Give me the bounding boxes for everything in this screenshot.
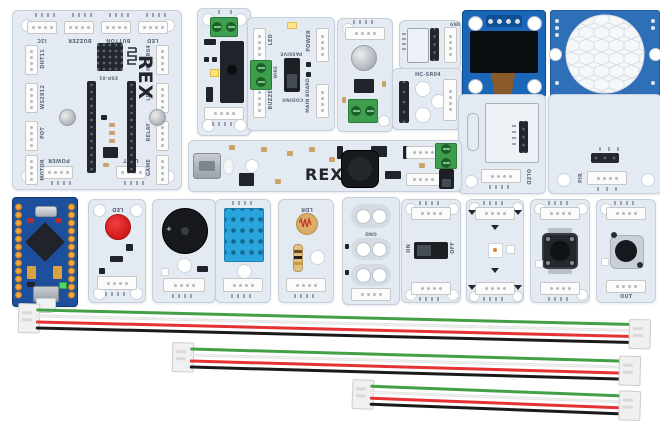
pin-legs <box>483 201 503 205</box>
pin <box>161 172 164 175</box>
pin <box>616 285 619 288</box>
pin <box>32 26 35 29</box>
pin <box>425 201 427 205</box>
pin <box>117 292 119 296</box>
contact-pad <box>356 242 371 257</box>
pin-legs <box>353 20 373 24</box>
port-power <box>43 166 73 179</box>
pin <box>218 10 220 14</box>
neopixel-led <box>488 243 503 258</box>
smd-pad <box>287 151 293 156</box>
pin <box>568 287 571 290</box>
pin <box>57 181 59 185</box>
pin <box>239 284 242 287</box>
mounting-hole <box>177 258 192 273</box>
pin-legs <box>548 201 568 205</box>
pin <box>113 282 116 285</box>
pin <box>449 96 452 99</box>
cable-connector <box>618 355 641 386</box>
dht11-sensor <box>224 208 264 262</box>
mounting-hole <box>237 264 252 279</box>
pin <box>294 294 296 298</box>
port-label: LED <box>147 37 158 42</box>
pin <box>425 178 428 181</box>
pin <box>413 178 416 181</box>
pin <box>109 13 111 17</box>
pin <box>149 26 152 29</box>
port-label: WS2812 <box>41 85 46 109</box>
sonar-adapter: HC-SR04 <box>392 68 462 130</box>
pin <box>615 187 617 191</box>
pin <box>243 294 245 298</box>
pin <box>622 212 625 215</box>
pin <box>220 112 223 115</box>
mounting-hole <box>557 173 571 187</box>
pin <box>112 26 115 29</box>
pin <box>616 212 619 215</box>
pin <box>30 166 33 169</box>
diode <box>204 39 216 45</box>
pin <box>30 172 33 175</box>
pin <box>161 126 164 129</box>
smd-pad <box>382 81 386 87</box>
mode-board: LED POWER BUZZER MAIN BOARD WIRE PASSIVE… <box>247 17 335 131</box>
pin <box>232 201 234 205</box>
ic-chip <box>103 147 118 158</box>
pin <box>622 285 625 288</box>
pin <box>251 284 254 287</box>
dht11-module <box>215 199 271 303</box>
pin-legs <box>599 147 619 151</box>
pin <box>321 53 324 56</box>
pin <box>441 158 451 168</box>
button-module <box>530 199 590 303</box>
pin <box>321 109 324 112</box>
smd-pad <box>161 268 169 276</box>
pin <box>231 294 233 298</box>
relay-jst <box>204 107 244 120</box>
pin-legs <box>51 181 71 185</box>
pin-dot <box>651 19 655 23</box>
pin <box>250 201 252 205</box>
pin <box>172 294 174 298</box>
pin <box>351 106 361 116</box>
pin <box>244 201 246 205</box>
pin <box>161 26 164 29</box>
header-socket <box>519 121 528 153</box>
port-hcsr04 <box>156 45 169 75</box>
smd-pad <box>109 131 115 135</box>
contact-pad <box>356 268 371 283</box>
smd-pad <box>342 97 346 103</box>
rex-logo: REX <box>305 167 344 183</box>
pin <box>30 50 33 53</box>
power-led <box>59 282 67 289</box>
pin <box>212 22 222 32</box>
pin <box>367 32 370 35</box>
pin <box>314 284 317 287</box>
pot-lug <box>637 262 643 268</box>
buzzer <box>341 150 379 188</box>
mcu-board <box>12 197 78 307</box>
pin <box>161 56 164 59</box>
pin <box>258 91 261 94</box>
red-led <box>105 214 131 240</box>
relay-module <box>197 8 251 136</box>
crystal <box>35 206 57 217</box>
pin <box>105 292 107 296</box>
arrow-down <box>491 268 499 273</box>
pin <box>54 171 57 174</box>
port-motor <box>25 155 38 185</box>
port-led <box>253 28 266 62</box>
pin <box>437 297 439 301</box>
mounting-hole <box>527 79 542 94</box>
pin <box>164 13 166 17</box>
pin <box>87 26 90 29</box>
pin <box>245 284 248 287</box>
pin <box>321 103 324 106</box>
pin <box>69 26 72 29</box>
pin <box>548 297 550 301</box>
pin <box>35 13 37 17</box>
pin <box>597 187 599 191</box>
pin <box>495 297 497 301</box>
pin-dot <box>651 81 655 85</box>
pin <box>355 32 358 35</box>
pin <box>30 160 33 163</box>
pin <box>30 144 33 147</box>
mounting-hole <box>130 204 143 217</box>
pin <box>161 138 164 141</box>
pin <box>497 287 500 290</box>
pin <box>212 122 214 126</box>
switch-jst <box>411 282 451 295</box>
smd-part <box>99 268 105 274</box>
pin <box>421 212 424 215</box>
pin <box>321 35 324 38</box>
pin <box>178 294 180 298</box>
pin <box>439 212 442 215</box>
pin <box>258 47 261 50</box>
mounting-hole <box>468 79 483 94</box>
relay-dimple <box>227 65 237 75</box>
pin <box>146 13 148 17</box>
pin <box>449 108 452 111</box>
smd-pad <box>229 145 235 150</box>
pin <box>136 181 138 185</box>
pin <box>419 151 422 154</box>
button-jst <box>540 207 580 220</box>
pin <box>161 160 164 163</box>
mini-usb <box>193 153 221 179</box>
pin <box>121 13 123 17</box>
label-bracket <box>407 28 429 63</box>
smd-part <box>385 171 401 179</box>
pin <box>30 132 33 135</box>
power-jst <box>406 173 440 186</box>
pin <box>485 287 488 290</box>
pin <box>512 143 516 145</box>
port-label: POWER <box>48 157 70 162</box>
mounting-hole <box>641 173 655 187</box>
pin <box>491 212 494 215</box>
pin <box>161 94 164 97</box>
pir-carrier: PIR <box>548 94 660 194</box>
pin-legs <box>294 294 314 298</box>
pin <box>441 144 451 154</box>
led-module: LED <box>88 199 146 303</box>
breakout-jst <box>444 27 457 63</box>
pin-dot <box>651 26 655 30</box>
port-ws2812 <box>25 83 38 113</box>
oled-carrier: OLED <box>458 94 546 194</box>
pin-dot <box>555 26 559 30</box>
jst-cable-long <box>18 303 651 348</box>
pin-label: GND <box>450 23 461 27</box>
port-label: BUZZER <box>68 37 92 42</box>
pin <box>566 297 568 301</box>
driver-terminal <box>348 99 378 123</box>
power-board: REX <box>188 140 462 192</box>
pin <box>556 287 559 290</box>
smd-pad <box>601 258 609 266</box>
neopixel-jst <box>475 282 515 295</box>
pin <box>161 178 164 181</box>
pin <box>306 294 308 298</box>
mounting-hole <box>468 16 483 31</box>
pin <box>127 13 129 17</box>
pin <box>123 292 125 296</box>
push-button <box>542 233 578 269</box>
pin <box>119 282 122 285</box>
port-label: POT <box>41 127 46 139</box>
pin <box>489 201 491 205</box>
pot-lug <box>611 232 617 238</box>
pin-legs <box>512 125 516 145</box>
switch-label-coding: CODING <box>282 96 303 101</box>
pin <box>497 212 500 215</box>
pin <box>425 297 427 301</box>
pin <box>186 284 189 287</box>
pin <box>609 177 612 180</box>
driver-module <box>337 18 393 132</box>
ldr-module: LDR <box>278 199 334 303</box>
smd-part <box>197 266 208 272</box>
port-power <box>316 28 329 62</box>
pin <box>437 201 439 205</box>
port-label: POWER <box>307 30 312 52</box>
pin <box>628 285 631 288</box>
trimmer <box>351 45 377 71</box>
pin <box>402 33 406 35</box>
pin <box>258 41 261 44</box>
button-jst <box>540 282 580 295</box>
pin <box>512 131 516 133</box>
buzzer-module: + <box>152 199 216 303</box>
pin <box>402 48 406 50</box>
pin <box>30 178 33 181</box>
capacitor <box>59 109 76 126</box>
pin <box>427 212 430 215</box>
pin <box>38 26 41 29</box>
pin <box>107 282 110 285</box>
mounting-hole <box>93 204 106 217</box>
mounting-hole <box>465 175 478 188</box>
pin <box>373 32 376 35</box>
breakout-board: GND <box>399 20 461 70</box>
pin <box>503 212 506 215</box>
status-led <box>210 69 219 77</box>
ldr-sensor <box>296 213 318 235</box>
pin <box>161 144 164 147</box>
pin <box>626 201 628 205</box>
pin <box>507 185 509 189</box>
pin <box>48 171 51 174</box>
port-label: BUTTON <box>106 37 130 42</box>
pin-legs <box>35 13 55 17</box>
pin-legs <box>172 294 192 298</box>
pin <box>224 122 226 126</box>
pin <box>365 20 367 24</box>
pin <box>230 10 232 14</box>
smd-pad <box>261 147 267 152</box>
polarity-mark: + <box>166 226 172 233</box>
pin-legs <box>614 201 634 205</box>
port-button <box>101 21 131 34</box>
pin <box>30 88 33 91</box>
pin <box>620 201 622 205</box>
pin-legs <box>597 187 617 191</box>
smd-part <box>101 115 107 120</box>
pin <box>562 212 565 215</box>
fresnel-dome <box>564 13 646 95</box>
pin <box>230 122 232 126</box>
pin <box>81 26 84 29</box>
sonar-jst <box>443 79 457 121</box>
pin <box>606 187 608 191</box>
pin <box>66 171 69 174</box>
terminal-label: WIRE <box>274 66 278 79</box>
pin <box>427 287 430 290</box>
mounting-hole <box>378 115 390 127</box>
pin <box>449 102 452 105</box>
pin <box>379 293 382 296</box>
contact-pad <box>356 209 371 224</box>
pin <box>308 284 311 287</box>
smd-part <box>345 244 349 249</box>
pin <box>433 287 436 290</box>
oled-jst <box>481 169 521 183</box>
smd-part <box>204 57 209 62</box>
screw-hole <box>549 48 562 61</box>
port-led <box>138 21 168 34</box>
kit-photo: I2C BUZZER BUTTON LED DHT11 WS2812 POT M… <box>0 0 660 426</box>
pin <box>550 212 553 215</box>
pin <box>30 68 33 71</box>
pin <box>139 171 142 174</box>
arrow-down <box>514 285 522 290</box>
pin <box>431 178 434 181</box>
led-jst <box>97 276 137 290</box>
pin <box>161 68 164 71</box>
pin <box>258 97 261 100</box>
switch-module: ON OFF <box>401 199 461 303</box>
pin <box>30 106 33 109</box>
pin <box>560 297 562 301</box>
capacitor <box>149 109 166 126</box>
smd-part <box>306 62 311 67</box>
pin <box>614 201 616 205</box>
arrow-down <box>468 285 476 290</box>
pin <box>562 287 565 290</box>
smd-pad <box>109 123 115 127</box>
pin <box>161 132 164 135</box>
pin <box>449 47 452 50</box>
pin-dot <box>555 19 559 23</box>
pin <box>69 181 71 185</box>
pin <box>44 26 47 29</box>
pin <box>84 13 86 17</box>
pads-module: GND <box>342 197 400 305</box>
pin <box>121 171 124 174</box>
pin-legs <box>483 297 503 301</box>
pin <box>237 294 239 298</box>
pin <box>72 13 74 17</box>
pin-legs <box>489 185 509 189</box>
contact-pad <box>372 242 387 257</box>
socket-label: ESP-01 <box>99 74 118 79</box>
cable-connector <box>618 390 641 421</box>
screw-hole <box>649 48 660 61</box>
main-shield-board: I2C BUZZER BUTTON LED DHT11 WS2812 POT M… <box>12 10 182 190</box>
pin <box>560 201 562 205</box>
pin <box>249 294 251 298</box>
esp01-socket <box>97 43 123 71</box>
pin <box>161 100 164 103</box>
pin <box>226 112 229 115</box>
port-label: MAIN BOARD <box>307 78 312 113</box>
header-socket <box>591 153 619 163</box>
driver-jst <box>345 27 385 40</box>
pin <box>554 297 556 301</box>
pin <box>503 175 506 178</box>
module-label: HC-SR04 <box>415 73 441 78</box>
pin-legs <box>419 201 439 205</box>
smd-pad <box>103 163 109 167</box>
neopixel-jst <box>475 207 515 220</box>
pin <box>512 125 516 127</box>
pin-dot <box>555 81 559 85</box>
pin <box>634 285 637 288</box>
port-i2c <box>27 21 57 34</box>
pin <box>53 13 55 17</box>
pin <box>158 13 160 17</box>
header-socket <box>399 81 409 123</box>
pad-label: GND <box>365 230 377 235</box>
pin <box>50 26 53 29</box>
pin <box>152 13 154 17</box>
pin-header <box>486 15 522 27</box>
pin-legs <box>124 181 144 185</box>
pin-legs <box>109 13 129 17</box>
transducer-hole <box>415 107 431 123</box>
pin <box>142 181 144 185</box>
pin <box>161 106 164 109</box>
port-label: RELAY <box>147 123 152 141</box>
pin <box>30 138 33 141</box>
ldr-jst <box>286 278 326 292</box>
